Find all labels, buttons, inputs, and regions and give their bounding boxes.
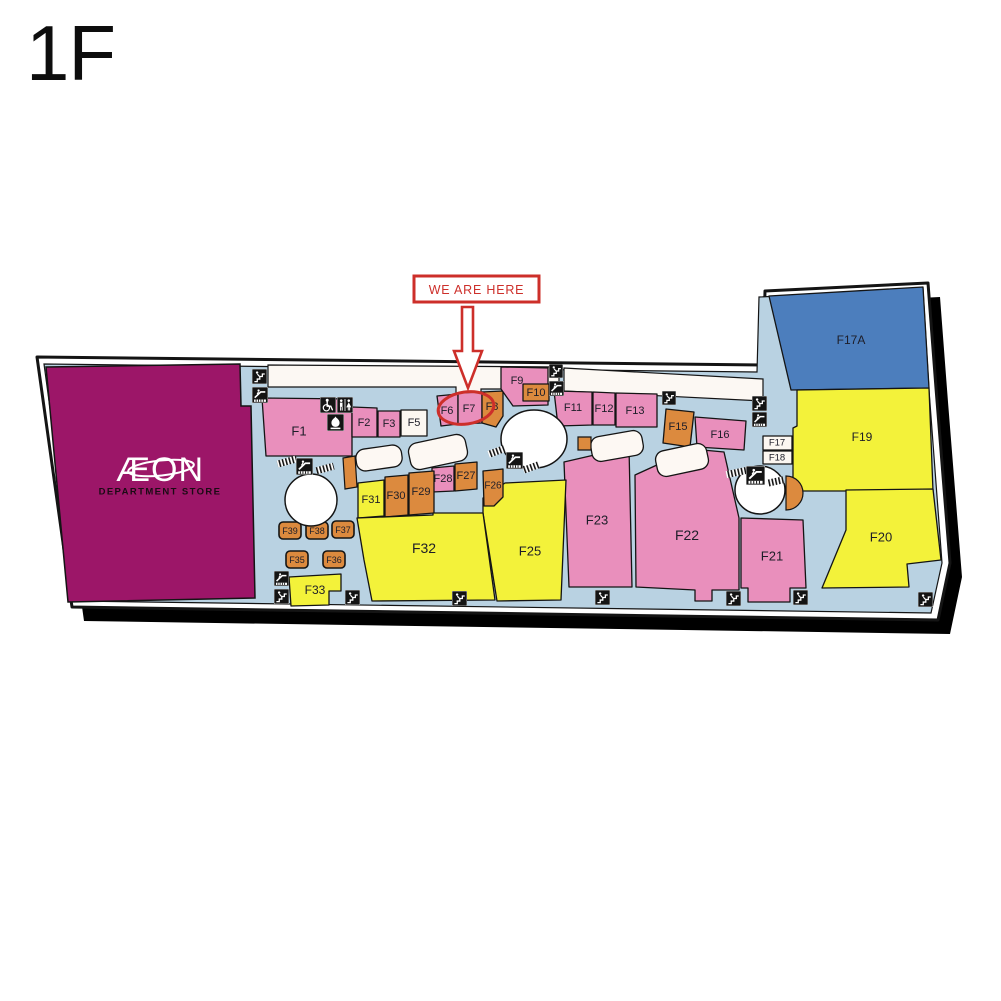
- store-label-F1: F1: [291, 424, 306, 439]
- store-label-F28: F28: [434, 473, 453, 485]
- store-label-F10: F10: [527, 387, 546, 399]
- stairs-icon: [662, 391, 676, 405]
- store-label-F38: F38: [309, 526, 325, 536]
- store-label-F9: F9: [511, 375, 524, 387]
- store-label-F22: F22: [675, 527, 699, 543]
- elevator-circle: [285, 474, 337, 526]
- escalator-icon: [549, 381, 564, 396]
- store-F32: [357, 513, 495, 601]
- stairs-icon: [595, 590, 610, 605]
- store-label-F33: F33: [305, 583, 326, 597]
- store-label-F7: F7: [463, 403, 476, 415]
- store-label-F19: F19: [852, 430, 873, 444]
- stairs-icon: [252, 369, 267, 384]
- here-label: WE ARE HERE: [429, 283, 525, 297]
- stairs-icon: [793, 590, 808, 605]
- escalator-icon: [752, 412, 767, 427]
- floor-map-page: 1F: [0, 0, 1001, 1001]
- stairs-icon: [452, 591, 467, 606]
- kiosk-block: [578, 437, 591, 450]
- store-label-F15: F15: [669, 421, 688, 433]
- store-label-F11: F11: [564, 402, 582, 414]
- store-label-F35: F35: [289, 555, 305, 565]
- store-label-F25: F25: [519, 544, 541, 559]
- stairs-icon: [345, 590, 360, 605]
- escalator-icon: [746, 466, 765, 485]
- stairs-icon: [549, 364, 563, 378]
- store-label-F39: F39: [282, 526, 298, 536]
- floor-map: ÆONDEPARTMENT STOREF1F2F3F5F6F7F8F9F10F1…: [0, 0, 1001, 1001]
- aeon-subtitle: DEPARTMENT STORE: [99, 487, 222, 498]
- store-label-F17A: F17A: [837, 333, 866, 347]
- store-label-F31: F31: [362, 494, 381, 506]
- store-label-F12: F12: [595, 403, 614, 415]
- stairs-icon: [752, 396, 767, 411]
- store-label-F37: F37: [335, 525, 351, 535]
- store-label-F32: F32: [412, 540, 436, 556]
- restroom-icon: [337, 397, 353, 413]
- store-label-F27: F27: [457, 470, 476, 482]
- store-label-F17: F17: [769, 438, 785, 449]
- store-label-F29: F29: [412, 486, 431, 498]
- store-label-F2: F2: [358, 417, 371, 429]
- store-label-F23: F23: [586, 513, 608, 528]
- store-label-F6: F6: [441, 405, 454, 417]
- escalator-icon: [296, 458, 313, 475]
- escalator-icon: [252, 387, 268, 403]
- store-label-F3: F3: [383, 418, 396, 430]
- store-label-F18: F18: [769, 453, 785, 464]
- store-label-F36: F36: [326, 555, 342, 565]
- kiosk-block: [343, 456, 357, 489]
- escalator-icon: [506, 452, 523, 469]
- escalator-icon: [274, 571, 289, 586]
- stairs-icon: [726, 591, 741, 606]
- store-label-F16: F16: [711, 429, 730, 441]
- wheelchair-icon: [320, 397, 336, 413]
- store-label-F5: F5: [408, 417, 421, 429]
- prayer-room-icon: [327, 414, 344, 431]
- store-label-F30: F30: [387, 490, 406, 502]
- store-label-F20: F20: [870, 530, 892, 545]
- store-label-F21: F21: [761, 549, 783, 564]
- store-label-F13: F13: [626, 405, 645, 417]
- store-label-F26: F26: [484, 481, 502, 492]
- stairs-icon: [918, 592, 933, 607]
- stairs-icon: [274, 589, 289, 604]
